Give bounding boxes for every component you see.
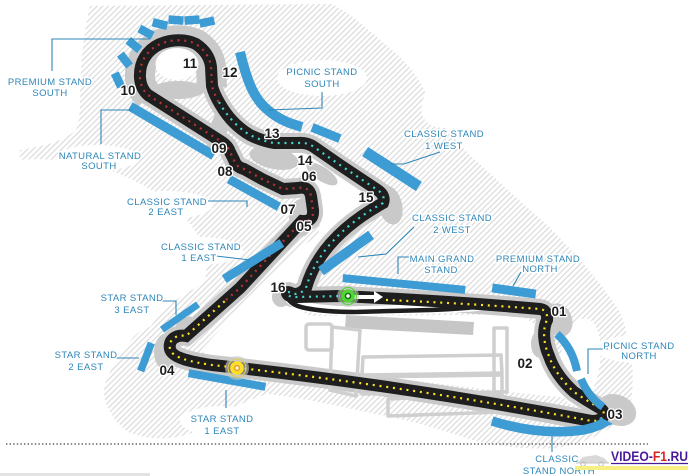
svg-text:STAR STAND: STAR STAND <box>101 293 164 304</box>
svg-text:STAND: STAND <box>424 265 458 276</box>
svg-text:14: 14 <box>297 153 313 168</box>
svg-text:PREMIUM STAND: PREMIUM STAND <box>8 77 92 88</box>
svg-text:15: 15 <box>358 190 374 205</box>
svg-text:CLASSIC STAND: CLASSIC STAND <box>404 129 484 140</box>
svg-text:13: 13 <box>264 126 280 141</box>
svg-text:2 WEST: 2 WEST <box>433 225 471 236</box>
svg-text:SOUTH: SOUTH <box>304 79 339 90</box>
svg-text:05: 05 <box>296 219 312 234</box>
svg-text:16: 16 <box>270 280 286 295</box>
svg-text:STAR STAND: STAR STAND <box>55 350 118 361</box>
svg-text:07: 07 <box>280 202 295 217</box>
svg-text:2 EAST: 2 EAST <box>68 362 103 373</box>
svg-text:CLASSIC STAND: CLASSIC STAND <box>161 242 241 253</box>
svg-text:04: 04 <box>159 363 175 378</box>
svg-text:STAR STAND: STAR STAND <box>191 414 254 425</box>
svg-text:1 EAST: 1 EAST <box>204 426 239 437</box>
svg-text:1 EAST: 1 EAST <box>181 253 216 264</box>
svg-text:SOUTH: SOUTH <box>32 88 67 99</box>
svg-text:1 WEST: 1 WEST <box>425 141 463 152</box>
svg-text:03: 03 <box>607 407 623 422</box>
svg-text:3 EAST: 3 EAST <box>114 305 149 316</box>
svg-text:CLASSIC STAND: CLASSIC STAND <box>412 213 492 224</box>
svg-text:08: 08 <box>217 164 233 179</box>
svg-text:NORTH: NORTH <box>522 264 558 275</box>
svg-text:02: 02 <box>517 356 532 371</box>
svg-text:11: 11 <box>183 56 198 71</box>
svg-text:VIDEO-F1.RU: VIDEO-F1.RU <box>611 449 688 464</box>
svg-text:06: 06 <box>301 169 317 184</box>
svg-text:CLASSIC: CLASSIC <box>535 454 578 465</box>
svg-text:01: 01 <box>551 304 567 319</box>
svg-text:SOUTH: SOUTH <box>81 161 116 172</box>
svg-text:10: 10 <box>120 83 135 98</box>
svg-text:2 EAST: 2 EAST <box>148 207 183 218</box>
svg-text:MAIN GRAND: MAIN GRAND <box>410 254 475 265</box>
svg-text:PICNIC STAND: PICNIC STAND <box>286 67 357 78</box>
svg-text:09: 09 <box>211 141 226 156</box>
svg-text:NORTH: NORTH <box>621 351 657 362</box>
svg-text:12: 12 <box>222 65 237 80</box>
